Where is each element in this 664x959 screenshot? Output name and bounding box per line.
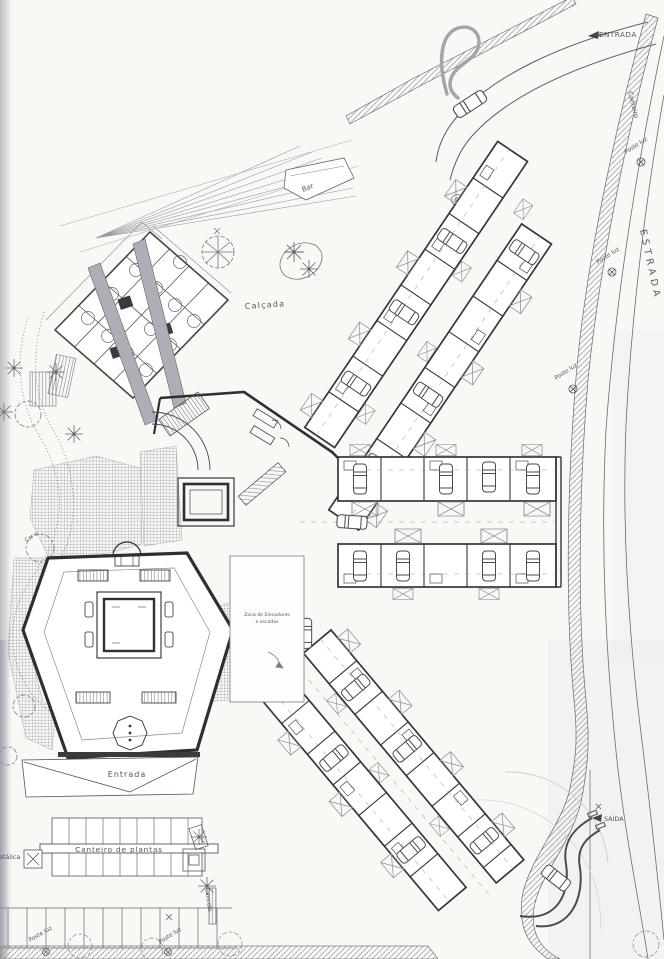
label-calcada: Calçada bbox=[245, 299, 286, 311]
label-canteiro-plantas: Canteiro de plantas bbox=[75, 845, 163, 854]
palm-icon bbox=[191, 829, 207, 845]
car-icon bbox=[527, 551, 540, 581]
palm-icon bbox=[65, 425, 83, 443]
east-wing bbox=[300, 444, 561, 599]
lamp-icon bbox=[637, 158, 645, 166]
patio-x-icon bbox=[350, 444, 370, 455]
label-poste-luz-c: Poste luz bbox=[554, 363, 579, 382]
label-saida: SAÍDA bbox=[604, 814, 624, 823]
label-elevators-1: Zona de Elevadores bbox=[244, 612, 290, 618]
site-plan: ENTRADA Canteiro ESTRADA Poste luz Poste… bbox=[0, 0, 664, 959]
lamp-icon bbox=[608, 268, 616, 276]
bottom-walkway bbox=[0, 946, 438, 959]
car-icon bbox=[354, 464, 367, 494]
label-entrada-hex: Entrada bbox=[108, 770, 146, 779]
car-icon bbox=[397, 551, 410, 581]
label-metalica: etálica bbox=[0, 853, 20, 861]
patio-x-icon bbox=[436, 444, 456, 455]
label-poste-luz-d: Poste luz bbox=[28, 926, 53, 944]
car-icon bbox=[483, 551, 496, 581]
pool bbox=[178, 478, 234, 526]
label-entrada-top: ENTRADA bbox=[599, 30, 637, 39]
bar-kiosk bbox=[284, 158, 354, 200]
palm-icon bbox=[284, 242, 304, 262]
plan-canvas: ENTRADA Canteiro ESTRADA Poste luz Poste… bbox=[0, 0, 664, 959]
left-edge-shadow-lower bbox=[0, 640, 9, 959]
car-icon bbox=[354, 551, 367, 581]
elevator-zone bbox=[230, 556, 304, 702]
terrain-fan bbox=[60, 140, 358, 252]
label-estrada: ESTRADA bbox=[637, 228, 663, 301]
stairs bbox=[140, 570, 170, 581]
patio-x-icon bbox=[479, 588, 499, 599]
pond bbox=[274, 236, 329, 287]
car-icon bbox=[527, 464, 540, 494]
gate-box-icon bbox=[24, 850, 42, 868]
ramp bbox=[238, 463, 286, 506]
patio-x-icon bbox=[393, 588, 413, 599]
patio-x-icon bbox=[438, 502, 464, 516]
patio-x-icon bbox=[513, 199, 532, 220]
stairs bbox=[78, 570, 108, 581]
stairs bbox=[142, 692, 176, 703]
car-icon bbox=[452, 89, 488, 119]
label-elevators-2: e escadas bbox=[256, 619, 280, 625]
patio-x-icon bbox=[522, 444, 542, 455]
label-car-o: Car o bbox=[24, 531, 39, 544]
palm-icon bbox=[300, 260, 318, 278]
stairs bbox=[76, 692, 110, 703]
car-icon bbox=[440, 464, 453, 494]
palm-icon bbox=[47, 363, 65, 381]
patio-x-icon bbox=[395, 529, 421, 543]
patio-x-icon bbox=[524, 502, 550, 516]
car-icon bbox=[483, 462, 496, 492]
car-icon bbox=[337, 514, 368, 529]
patio-x-icon bbox=[481, 529, 507, 543]
